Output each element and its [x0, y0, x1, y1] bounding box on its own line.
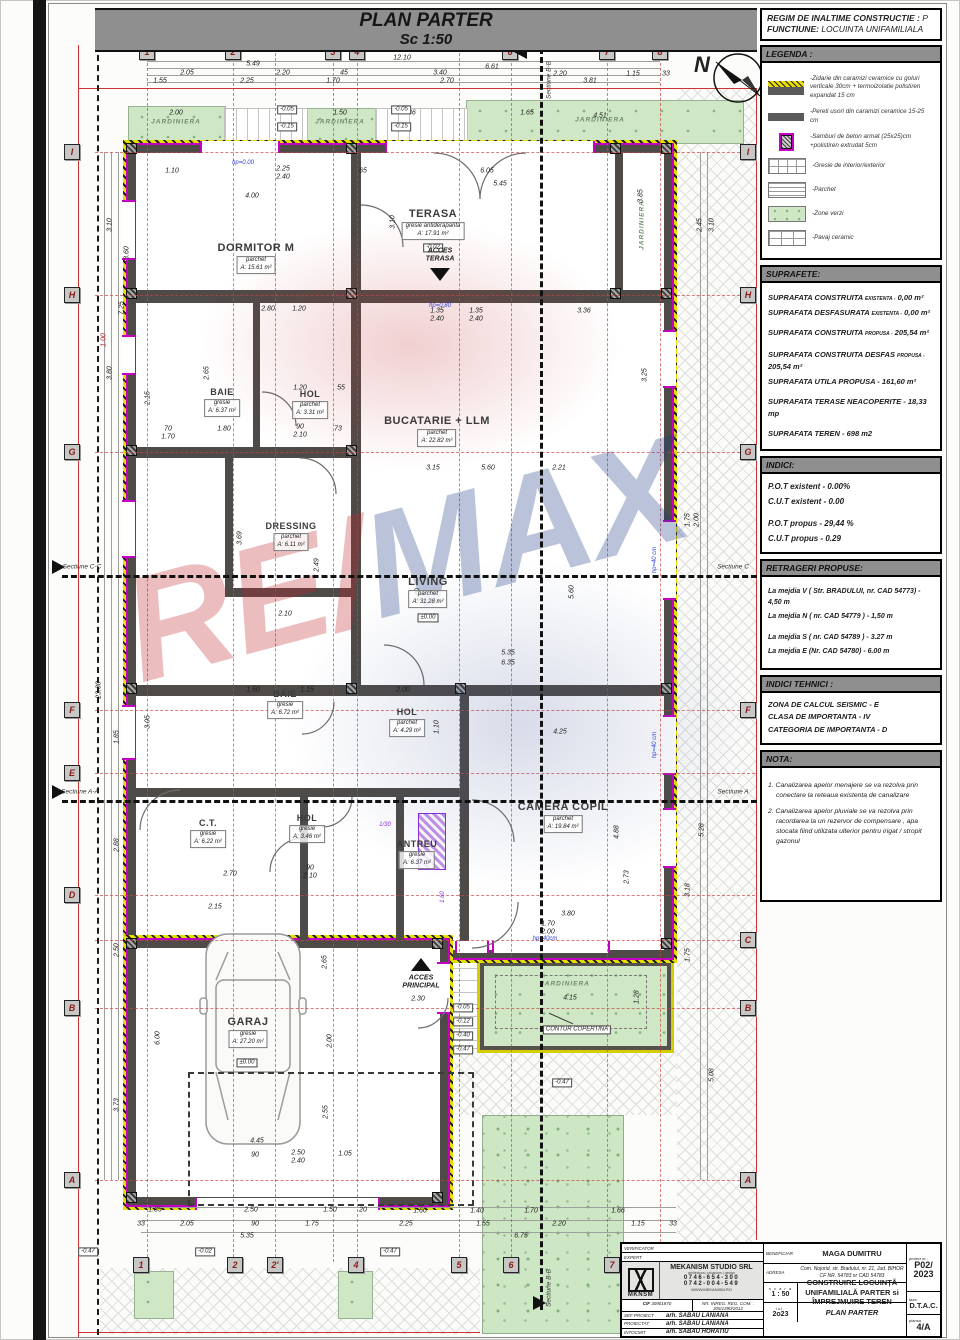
firm-name: MEKANISM STUDIO SRL — [660, 1264, 763, 1271]
legend-swatch-wall-light — [768, 110, 804, 124]
level-label: -0.15 — [277, 122, 297, 131]
canopy-callout: CONTUR COPERTINA — [543, 1025, 611, 1034]
dimension-label: 1.35 — [469, 308, 483, 315]
dimension-label: 1.15 — [631, 1221, 645, 1228]
dimension-label: 12.10 — [393, 55, 411, 62]
legend-title: LEGENDA : — [762, 47, 940, 63]
level-label: ±0.00 — [418, 613, 439, 622]
dimension-label: 2.50 — [291, 1150, 305, 1157]
mknsm-logo-icon — [628, 1268, 654, 1292]
legend-swatch-paving — [768, 230, 806, 246]
retrageri-section: RETRAGERI PROPUSE: La mejdia V ( Str. BR… — [760, 559, 942, 670]
grid-bubble: 2' — [267, 1257, 283, 1273]
dimension-label: 1.85 — [114, 730, 121, 744]
dimension-label: 20 — [359, 1207, 367, 1214]
dimension-label: 2.10 — [278, 611, 292, 618]
section-line-cc — [62, 575, 757, 578]
plansa-row: iul.2o23 PLAN PARTER — [764, 1303, 906, 1323]
dimension-label: 90 — [296, 424, 304, 431]
dimension-label: 1.75 — [305, 1221, 319, 1228]
legend-swatch-wall-insulated — [768, 81, 804, 95]
north-arrow-icon — [708, 48, 768, 108]
room-bucatarie-llm: BUCATARIE + LLM parchetA: 22.82 m² — [384, 415, 490, 447]
dimension-label: 6.00 — [155, 1031, 162, 1045]
section-label-a: Sectiune A — [717, 789, 748, 796]
room-dressing: DRESSING parchetA: 6.11 m² — [265, 521, 316, 551]
section-label-c: Sectiune C — [717, 564, 749, 571]
dimension-label: 2.00 — [541, 929, 555, 936]
expert-label: EXPERT — [624, 1255, 642, 1260]
dimension-label: 4.25 — [553, 729, 567, 736]
dimension-label: 6.05 — [480, 168, 494, 175]
dimension-label: 4.88 — [614, 825, 621, 839]
dimension-label: 2.55 — [323, 1105, 330, 1119]
dimension-label: 2.21 — [552, 465, 566, 472]
dimension-label: 2.05 — [180, 70, 194, 77]
dimension-label: 2.65 — [204, 366, 211, 380]
grid-bubble: 4 — [348, 1257, 364, 1273]
legend-swatch-green — [768, 206, 806, 222]
dimension-label: 4.15 — [563, 995, 577, 1002]
dimension-label: 2.80 — [261, 306, 275, 313]
dimension-label: 2.25 — [399, 1221, 413, 1228]
plan-title: PLAN PARTER — [95, 11, 757, 32]
dimension-label: 5.08 — [709, 1068, 716, 1082]
dimension-label: 1.55 — [476, 1221, 490, 1228]
plansa-cell: plansa 4/A — [907, 1315, 940, 1336]
grid-bubble: 2 — [227, 1257, 243, 1273]
dimension-label: 2.20 — [552, 1221, 566, 1228]
dimension-label: 2.05 — [180, 1221, 194, 1228]
dimension-label: 1.50 — [246, 687, 260, 694]
dimension-label: 2.50 — [114, 943, 121, 957]
dimension-label: 3.10 — [107, 218, 114, 232]
dimension-label: 70 — [164, 426, 172, 433]
dimension-label: 55 — [337, 385, 345, 392]
dimension-label: 3.10 — [390, 215, 397, 229]
level-label: -0.47 — [78, 1247, 98, 1256]
dimension-label: 4.00 — [245, 193, 259, 200]
dimension-label: 3.15 — [426, 465, 440, 472]
level-label: -0.47 — [552, 1078, 572, 1087]
level-label: -0.02 — [195, 1247, 215, 1256]
grid-bubble: A — [64, 1172, 80, 1188]
dimension-label: 2.49 — [314, 558, 321, 572]
grid-bubble: B — [740, 1000, 756, 1016]
dimension-label: 2.20 — [276, 70, 290, 77]
grid-bubble: E — [64, 765, 80, 781]
level-label: -0.47 — [453, 1045, 473, 1054]
dimension-label: 33 — [669, 1221, 677, 1228]
dimension-label: hp=40 cm — [652, 732, 658, 759]
dimension-label: 2.30 — [411, 996, 425, 1003]
suprafete-section: SUPRAFETE: SUPRAFATA CONSTRUITA EXISTENT… — [760, 265, 942, 451]
dimension-label: 1.80 — [217, 426, 231, 433]
dimension-label: 3.25 — [642, 368, 649, 382]
firm-logo: MKNSM — [622, 1262, 660, 1299]
room-baie-1: BAIE gresieA: 6.37 m² — [204, 387, 240, 417]
grid-bubble: C — [740, 932, 756, 948]
grid-bubble: G — [740, 444, 756, 460]
dimension-label: 3.80 — [107, 366, 114, 380]
acces-terasa-label: ACCESTERASA — [426, 247, 455, 262]
dimension-label: 5.28 — [699, 823, 706, 837]
grid-bubble: 5 — [451, 1257, 467, 1273]
grid-bubble: I — [64, 144, 80, 160]
firm-registration: CIF 30901870 NR. INREG. REG. COM. : J05/… — [622, 1300, 763, 1312]
dimension-label: 1.10 — [434, 720, 441, 734]
dimension-label: 1.35 — [148, 1207, 162, 1214]
grid-bubble: 1 — [133, 1257, 149, 1273]
intocmit-row: INTOCMITarh. SABAU HORATIU — [622, 1329, 763, 1336]
dimension-label: 3.69 — [237, 531, 244, 545]
jardiniera-label: JARDINIERA — [315, 119, 365, 126]
section-arrow — [533, 1296, 546, 1310]
dimension-label: 2.00 — [169, 110, 183, 117]
section-label-aa: Sectiune A-A — [61, 789, 99, 796]
dimension-label: 1.70 — [326, 78, 340, 85]
dimension-label: 2.20 — [553, 71, 567, 78]
dimension-label: 2.00 — [694, 513, 701, 527]
grid-bubble: B — [64, 1000, 80, 1016]
dimension-label: 7.25 — [119, 301, 126, 315]
dimension-label: 6.35 — [501, 660, 515, 667]
acces-terasa-arrow — [430, 268, 450, 281]
dimension-label: 3.05 — [145, 715, 152, 729]
dimension-label: 2.15 — [145, 391, 152, 405]
dimension-label: 90 — [251, 1152, 259, 1159]
dimension-label: 1.70 — [161, 434, 175, 441]
beneficiar-row: BENEFICIARMAGA DUMITRU — [764, 1244, 906, 1264]
legend-item: -Pereti usori din caramizi ceramice 15-2… — [768, 108, 934, 125]
room-living: LIVING parchetA: 31.28 m² — [408, 576, 448, 608]
level-label: -0.05 — [391, 105, 411, 114]
dimension-label: 4.51 — [593, 113, 607, 120]
section-label-bb-bottom: Sectiune B-B — [546, 1269, 553, 1307]
dimension-label: 3.85 — [638, 189, 645, 203]
legend-section: LEGENDA : -Zidarie din caramizi ceramice… — [760, 45, 942, 261]
dimension-label: 1/30 — [379, 822, 391, 828]
legend-item: -Zidarie din caramizi ceramice cu goluri… — [768, 75, 934, 101]
proiect-nr-cell: proiect nr.: P02/ 2023 — [907, 1244, 940, 1292]
dimension-label: 2.50 — [244, 1207, 258, 1214]
dimension-label: 1.00 — [101, 333, 108, 347]
info-panel: REGIM DE INALTIME CONSTRUCTIE : P FUNCTI… — [760, 8, 942, 907]
dimension-label: 2.65 — [322, 955, 329, 969]
room-dormitor-m: DORMITOR M parchetA: 15.61 m² — [218, 242, 295, 274]
dimension-label: 2.25 — [240, 78, 254, 85]
dimension-label: 1.60 — [413, 1208, 427, 1215]
dimension-label: 5.35 — [240, 1233, 254, 1240]
dimension-label: 1.75 — [685, 513, 692, 527]
dimension-label: 2.25 — [276, 166, 290, 173]
grid-bubble: 6 — [503, 1257, 519, 1273]
dimension-label: 1.70 — [541, 921, 555, 928]
nota-title: NOTA: — [762, 752, 940, 768]
room-camera-copil: CAMERA COPIL parchetA: 19.84 m² — [518, 801, 609, 833]
dimension-label: 4.45 — [250, 1138, 264, 1145]
legend-swatch-column — [768, 135, 804, 149]
grid-bubble: G — [64, 444, 80, 460]
floor-plan-sheet: PLAN PARTER Sc 1:50 — [0, 0, 960, 1340]
dimension-label: 6.75 — [514, 1233, 528, 1240]
dimension-label: 1.66 — [611, 1208, 625, 1215]
grid-bubble: H — [64, 287, 80, 303]
room-garaj: GARAJ gresieA: 27.20 m² — [227, 1016, 268, 1048]
level-label: -0.15 — [391, 122, 411, 131]
level-label: -0.12 — [453, 1017, 473, 1026]
dimension-label: 1.75 — [685, 948, 692, 962]
dimension-label: 65 — [359, 168, 367, 175]
dimension-label: hp=0.00 — [232, 160, 254, 166]
dimension-label: 1.60 — [440, 891, 446, 903]
verificator-label: VERIFICATOR — [624, 1246, 654, 1251]
jardiniera-label: JARDINIERA — [639, 200, 646, 250]
dimension-label: 2.40 — [430, 316, 444, 323]
grid-bubble: F — [64, 702, 80, 718]
faza-cell: faza D.T.A.C. — [907, 1292, 940, 1315]
sef-proiect-row: SEF PROIECTarh. SABAU LANIANA — [622, 1312, 763, 1320]
dimension-label: 90 — [251, 1221, 259, 1228]
dimension-label: 3.40 — [433, 70, 447, 77]
dimension-label: 33 — [137, 1221, 145, 1228]
dimension-label: 1.55 — [153, 78, 167, 85]
dimension-label: 2.10 — [293, 432, 307, 439]
suprafete-title: SUPRAFETE: — [762, 267, 940, 283]
dimension-label: 23.30 — [96, 681, 103, 699]
jardiniera-label: JARDINIERA — [540, 981, 590, 988]
dimension-label: 1.70 — [524, 1208, 538, 1215]
section-line-aa — [62, 800, 757, 803]
title-block: VERIFICATOR EXPERT MKNSM MEKANISM STUDIO… — [620, 1242, 942, 1338]
dimension-label: 1.20 — [292, 306, 306, 313]
grid-bubble: 7 — [604, 1257, 620, 1273]
dimension-label: 1.40 — [470, 1208, 484, 1215]
section-arrow — [52, 560, 65, 574]
dimension-label: 2.00 — [327, 1034, 334, 1048]
dimension-label: 5.60 — [569, 585, 576, 599]
dimension-label: 3.18 — [685, 883, 692, 897]
dimension-label: 2.70 — [440, 78, 454, 85]
regim-box: REGIM DE INALTIME CONSTRUCTIE : P FUNCTI… — [760, 8, 942, 41]
dimension-label: 3.10 — [709, 218, 716, 232]
indici-section: INDICI: P.O.T existent - 0.00% C.U.T exi… — [760, 456, 942, 554]
acces-principal-label: ACCESPRINCIPAL — [402, 974, 439, 989]
indici-title: INDICI: — [762, 458, 940, 474]
dimension-label: 2.73 — [624, 870, 631, 884]
dimension-label: 2.00 — [396, 687, 410, 694]
dimension-label: 2.70 — [223, 871, 237, 878]
dimension-label: 2.40 — [291, 1158, 305, 1165]
dimension-label: 1.65 — [520, 110, 534, 117]
legend-item: -Pavaj ceramic — [768, 230, 934, 246]
retrageri-title: RETRAGERI PROPUSE: — [762, 561, 940, 577]
dimension-label: 2.10 — [303, 873, 317, 880]
dimension-label: 5.49 — [246, 61, 260, 68]
level-label: -0.47 — [380, 1247, 400, 1256]
dimension-label: 3.60 — [124, 246, 131, 260]
dimension-label: 5.60 — [481, 465, 495, 472]
dimension-label: 73 — [334, 426, 342, 433]
room-terasa: TERASA gresie antiderapantaA: 17.91 m² — [402, 208, 465, 240]
grid-bubble: D — [64, 887, 80, 903]
dimension-label: 1.28 — [634, 990, 641, 1004]
section-label-cc: Sectiune C-C — [63, 564, 102, 571]
dimension-label: 2.40 — [469, 316, 483, 323]
dimension-label: 1.15 — [626, 71, 640, 78]
level-label: ±0.00 — [237, 1058, 258, 1067]
grid-bubble: A — [740, 1172, 756, 1188]
dimension-label: 2.40 — [276, 174, 290, 181]
dimension-label: 45 — [340, 70, 348, 77]
dimension-label: 5.35 — [501, 650, 515, 657]
nota-section: NOTA: 1. Canalizarea apelor menajere se … — [760, 750, 942, 902]
indici-tehnici-title: INDICI TEHNICI : — [762, 677, 940, 693]
firm-block: MKNSM MEKANISM STUDIO SRL arhitectura | … — [622, 1262, 763, 1300]
dimension-label: 3.73 — [114, 1098, 121, 1112]
legend-item: -Samburi de beton armat (25x25)cm +polis… — [768, 133, 934, 150]
dimension-label: hp=0.80 — [429, 303, 451, 309]
level-label: -0.05 — [453, 1003, 473, 1012]
dimension-label: 2.88 — [114, 838, 121, 852]
legend-item: -Gresie de interior/exterior — [768, 158, 934, 174]
room-hol-2: HOL parchetA: 4.29 m² — [389, 707, 425, 737]
proiect-row: s c a r a1 : 50 CONSTRUIRE LOCUINȚĂ UNIF… — [764, 1283, 906, 1303]
dimension-label: 1.50 — [333, 110, 347, 117]
dimension-label: hp=40 cm — [652, 547, 658, 574]
section-line-bb — [540, 48, 543, 1310]
firm-website: WWW.MEKANISM.RO — [660, 1287, 763, 1292]
dimension-label: 1.05 — [338, 1151, 352, 1158]
dimension-label: 1.10 — [165, 168, 179, 175]
legend-item: -Zone verzi — [768, 206, 934, 222]
room-baie-2: BAIE gresieA: 6.72 m² — [267, 689, 303, 719]
jardiniera-label: JARDINIERA — [151, 119, 201, 126]
plan-title-band: PLAN PARTER Sc 1:50 — [95, 8, 757, 52]
room-ct: C.T. gresieA: 6.22 m² — [190, 818, 226, 848]
room-hol-1: HOL parchetA: 3.31 m² — [292, 389, 328, 419]
grid-bubble: F — [740, 702, 756, 718]
dimension-label: 3.36 — [577, 308, 591, 315]
level-label: -0.05 — [277, 105, 297, 114]
proiectat-row: PROIECTATarh. SABAU LANIANA — [622, 1320, 763, 1328]
legend-swatch-parquet — [768, 182, 806, 198]
legend-swatch-tile — [768, 158, 806, 174]
dimension-label: 2.15 — [208, 904, 222, 911]
legend-item: -Parchet — [768, 182, 934, 198]
dimension-label: 2.45 — [697, 218, 704, 232]
dimension-label: 5.45 — [493, 181, 507, 188]
dimension-label: 3.80 — [561, 911, 575, 918]
room-hol-3: HOL gresieA: 3.46 m² — [289, 813, 325, 843]
dimension-label: 33 — [662, 71, 670, 78]
level-label: -0.40 — [453, 1031, 473, 1040]
section-arrow — [52, 785, 65, 799]
dimension-label: 90 — [306, 865, 314, 872]
dimension-label: 1.50 — [323, 1207, 337, 1214]
plan-scale: Sc 1:50 — [95, 32, 757, 47]
grid-bubble: H — [740, 287, 756, 303]
dimension-label: 3.81 — [583, 78, 597, 85]
indici-tehnici-section: INDICI TEHNICI : ZONA DE CALCUL SEISMIC … — [760, 675, 942, 745]
dimension-label: 6.61 — [485, 64, 499, 71]
room-antreu: ANTREU gresieA: 6.37 m² — [397, 839, 438, 869]
acces-principal-arrow — [411, 958, 431, 971]
section-label-bb-top: Sectiune B-B — [546, 61, 553, 99]
grid-bubble: I — [740, 144, 756, 160]
dimension-label: hp=40cm — [533, 936, 558, 942]
